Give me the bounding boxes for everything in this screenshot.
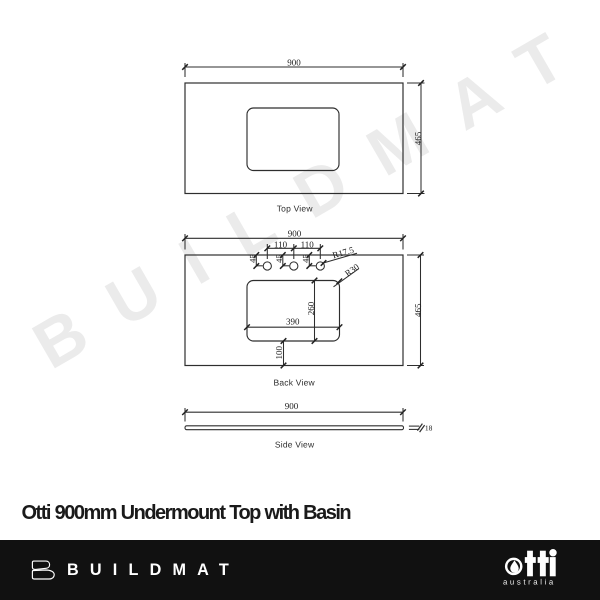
svg-text:Side View: Side View (275, 440, 315, 450)
svg-text:BUILDMAT: BUILDMAT (21, 20, 576, 384)
svg-text:900: 900 (287, 58, 301, 68)
svg-text:100: 100 (274, 346, 284, 360)
svg-text:900: 900 (288, 229, 302, 239)
svg-text:Back View: Back View (274, 377, 316, 387)
svg-text:australia: australia (503, 577, 556, 586)
svg-text:Top View: Top View (277, 204, 314, 214)
svg-text:110: 110 (301, 239, 315, 249)
svg-text:110: 110 (274, 239, 288, 249)
svg-text:R30: R30 (343, 261, 361, 278)
svg-text:465: 465 (413, 303, 423, 317)
svg-text:390: 390 (286, 316, 300, 326)
svg-text:R17.5: R17.5 (331, 245, 355, 261)
svg-text:45: 45 (301, 254, 311, 263)
svg-text:45: 45 (248, 254, 258, 263)
svg-text:465: 465 (413, 131, 423, 145)
svg-text:45: 45 (274, 254, 284, 263)
svg-text:18: 18 (425, 423, 433, 432)
svg-text:900: 900 (285, 401, 299, 411)
svg-text:260: 260 (306, 301, 316, 315)
